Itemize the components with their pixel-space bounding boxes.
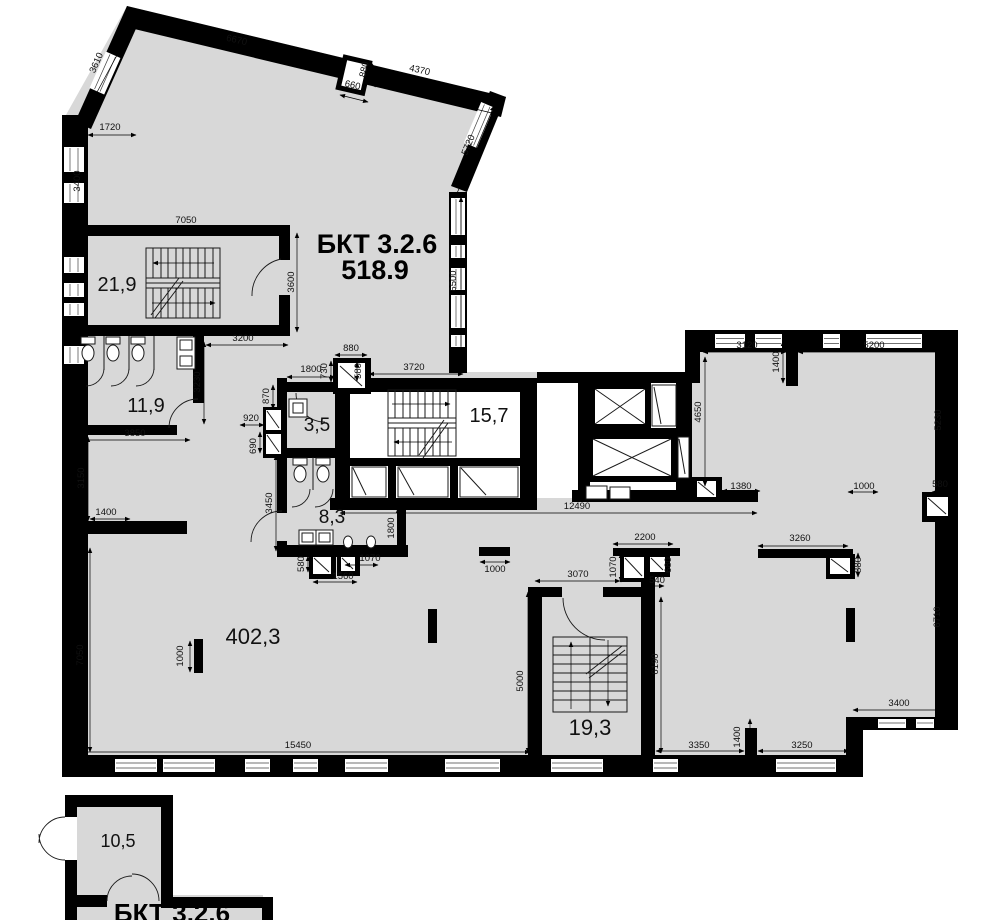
sink-counter bbox=[299, 530, 333, 545]
vestibule-cell bbox=[398, 467, 448, 497]
toilet bbox=[106, 337, 120, 361]
toilet bbox=[293, 458, 307, 482]
dimension-label: 1720 bbox=[99, 122, 120, 133]
vestibule-cell bbox=[352, 467, 386, 497]
dimension-label: 540 bbox=[649, 575, 665, 586]
dimension-label: 1000 bbox=[484, 564, 505, 575]
dimension-label: 3850 bbox=[124, 428, 145, 439]
dimension-label: 3150 bbox=[76, 467, 87, 488]
shaft-box bbox=[263, 407, 285, 434]
dimension-label: 2200 bbox=[634, 532, 655, 543]
dimension-label: 6710 bbox=[932, 606, 943, 627]
elevator-door bbox=[610, 487, 630, 499]
unit-area-total: 518.9 bbox=[341, 255, 409, 285]
dimension-label: 3400 bbox=[888, 698, 909, 709]
room-area-lavatory: 3,5 bbox=[304, 415, 330, 436]
shaft-box bbox=[692, 477, 722, 502]
room-area-stairwell-a: 21,9 bbox=[98, 274, 137, 296]
dimension-label: 3230 bbox=[192, 371, 203, 392]
shaft-box bbox=[826, 554, 855, 579]
toilet bbox=[131, 337, 145, 361]
dimension-label: 680 bbox=[663, 557, 674, 573]
toilet bbox=[316, 458, 330, 482]
dimension-label: 7050 bbox=[75, 644, 86, 665]
dimension-label: 3600 bbox=[286, 271, 297, 292]
sink-counter bbox=[177, 337, 195, 369]
dimension-label: 5230 bbox=[933, 409, 944, 430]
dimension-label: 3250 bbox=[791, 740, 812, 751]
dimension-label: 6500 bbox=[448, 270, 459, 291]
dimension-label: 580 bbox=[296, 556, 307, 572]
shaft-box bbox=[333, 358, 371, 394]
toilet bbox=[81, 337, 95, 361]
dimension-label: 880 bbox=[853, 557, 864, 573]
dimension-label: 1560 bbox=[332, 571, 353, 582]
dimension-label: 1380 bbox=[730, 481, 751, 492]
dimension-label: 4650 bbox=[693, 401, 704, 422]
dimension-label: 580 bbox=[932, 479, 948, 490]
dimension-label: 3720 bbox=[403, 362, 424, 373]
dimension-label: 870 bbox=[261, 388, 272, 404]
dimension-label: 5000 bbox=[515, 670, 526, 691]
room-area-entrance-lobby: 10,5 bbox=[100, 831, 135, 851]
dimension-label: 3400 bbox=[72, 170, 83, 191]
urinal bbox=[344, 536, 353, 548]
dimension-label: 3120 bbox=[736, 340, 757, 351]
shaft-box bbox=[620, 553, 648, 582]
vestibule-cell bbox=[460, 467, 518, 497]
dimension-label: 5200 bbox=[863, 340, 884, 351]
dimension-label: 6190 bbox=[650, 653, 661, 674]
dimension-label: 7050 bbox=[175, 215, 196, 226]
room-area-stairwell-c: 19,3 bbox=[569, 715, 612, 740]
dimension-label: 880 bbox=[343, 343, 359, 354]
dimension-label: 1400 bbox=[732, 726, 743, 747]
elevator-shaft bbox=[589, 383, 651, 430]
dimension-label: 1000 bbox=[175, 645, 186, 666]
dimension-label: 580 bbox=[353, 363, 364, 379]
dimension-label: 1800 bbox=[386, 517, 397, 538]
dimension-label: 690 bbox=[248, 438, 259, 454]
room-area-wc-block: 11,9 bbox=[127, 395, 164, 417]
annex-title: БКТ 3.2.6 bbox=[114, 898, 230, 920]
dimension-label: 3200 bbox=[232, 333, 253, 344]
dimension-label: 15450 bbox=[285, 740, 311, 751]
room-area-open-space: 402,3 bbox=[225, 624, 280, 649]
urinal bbox=[367, 536, 376, 548]
shaft-box bbox=[922, 492, 954, 522]
elevator-machine-room bbox=[652, 385, 676, 426]
dimension-label: 3450 bbox=[264, 492, 275, 513]
dimension-label: 3260 bbox=[789, 533, 810, 544]
room-area-wc-men: 8,3 bbox=[319, 507, 345, 528]
dimension-label: 730 bbox=[319, 363, 330, 379]
floor-plan-drawing: 6670880660437036105720172034007050650036… bbox=[0, 0, 1000, 920]
elevator-shaft bbox=[587, 433, 677, 482]
elevator-door bbox=[586, 486, 607, 499]
dimension-label: 12490 bbox=[564, 501, 590, 512]
floor-plan-page: 6670880660437036105720172034007050650036… bbox=[0, 0, 1000, 920]
dimension-label: 1400 bbox=[771, 351, 782, 372]
elevators bbox=[586, 383, 689, 499]
dimension-label: 3350 bbox=[688, 740, 709, 751]
elevator-machine-room bbox=[678, 437, 689, 478]
dimension-label: 920 bbox=[243, 413, 259, 424]
dimension-label: 3070 bbox=[567, 569, 588, 580]
room-area-stairwell-b: 15,7 bbox=[470, 405, 509, 427]
dimension-label: 1000 bbox=[853, 481, 874, 492]
dimension-label: 1070 bbox=[608, 556, 619, 577]
dimension-label: 1400 bbox=[95, 507, 116, 518]
shaft-box bbox=[263, 431, 285, 458]
dimension-label: 1070 bbox=[359, 553, 380, 564]
